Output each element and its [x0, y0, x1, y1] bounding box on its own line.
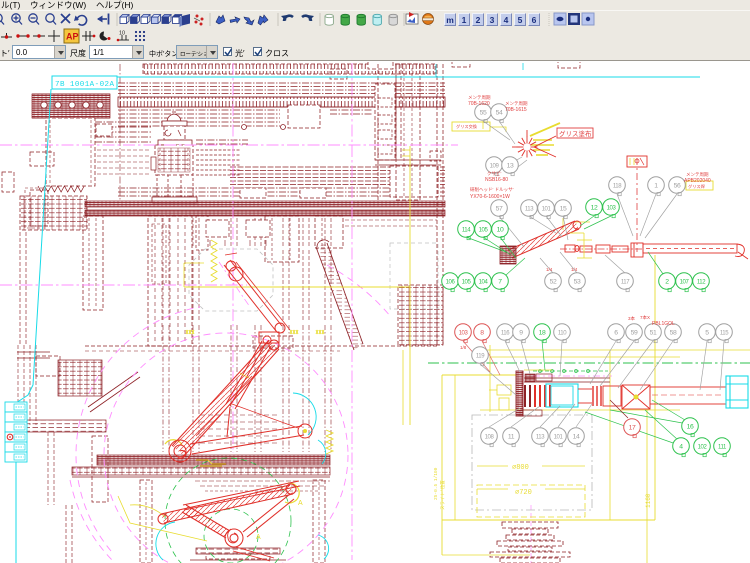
svg-text:118: 118	[613, 183, 622, 189]
svg-text:101: 101	[554, 434, 564, 440]
svg-text:スライト'位置: スライト'位置	[439, 480, 446, 510]
svg-text:111: 111	[718, 444, 727, 450]
svg-text:103: 103	[459, 330, 469, 336]
svg-text:10: 10	[497, 226, 504, 233]
svg-text:117: 117	[621, 279, 630, 285]
svg-text:55: 55	[480, 109, 487, 116]
svg-text:106: 106	[446, 279, 456, 285]
svg-text:15: 15	[560, 205, 567, 212]
svg-text:AP: AP	[66, 32, 79, 42]
svg-text:7本X: 7本X	[640, 314, 650, 321]
svg-text:102: 102	[698, 444, 708, 450]
svg-text:103: 103	[607, 205, 617, 211]
svg-text:58: 58	[670, 329, 677, 336]
svg-text:52: 52	[550, 278, 557, 285]
svg-text:112: 112	[697, 279, 706, 285]
svg-text:51: 51	[650, 329, 657, 336]
svg-text:YX70-6-1600×1W: YX70-6-1600×1W	[470, 194, 510, 200]
svg-text:113: 113	[525, 206, 534, 212]
svg-text:108: 108	[485, 434, 495, 440]
svg-text:70B-1620: 70B-1620	[468, 101, 490, 107]
svg-text:グリス塗布: グリス塗布	[559, 129, 592, 138]
svg-text:119: 119	[476, 353, 485, 359]
svg-text:12: 12	[591, 204, 598, 211]
svg-text:17: 17	[629, 424, 636, 431]
svg-text:14: 14	[573, 433, 580, 440]
svg-text:11: 11	[508, 433, 515, 440]
svg-text:13: 13	[507, 162, 514, 169]
svg-text:∅720: ∅720	[515, 489, 532, 497]
svg-text:105: 105	[479, 227, 489, 233]
svg-text:113: 113	[536, 434, 545, 440]
svg-text:105: 105	[462, 279, 472, 285]
svg-text:1160: 1160	[645, 493, 652, 508]
svg-text:グリス交換: グリス交換	[456, 123, 478, 130]
svg-text:NSB16-80: NSB16-80	[485, 177, 508, 183]
svg-text:研削ヘッド′ ドルッサ′: 研削ヘッド′ ドルッサ′	[470, 186, 514, 193]
svg-text:7B 1001A-02A: 7B 1001A-02A	[55, 81, 114, 89]
svg-text:101: 101	[542, 206, 552, 212]
svg-text:59: 59	[631, 329, 638, 336]
svg-text:54: 54	[496, 109, 503, 116]
svg-text:116: 116	[501, 330, 510, 336]
svg-text:A: A	[298, 500, 303, 507]
svg-text:1/8: 1/8	[460, 345, 467, 350]
svg-text:107: 107	[680, 279, 690, 285]
svg-text:PBL1GOL: PBL1GOL	[652, 321, 675, 327]
svg-text:10: 10	[119, 31, 125, 37]
svg-text:104: 104	[479, 279, 489, 285]
svg-text:18: 18	[539, 329, 546, 336]
svg-text:A: A	[256, 534, 261, 541]
svg-text:109: 109	[490, 163, 500, 169]
svg-text:クサビ′: クサビ′	[487, 170, 501, 177]
svg-text:110: 110	[558, 330, 567, 336]
svg-text:56: 56	[674, 182, 681, 189]
svg-text:57: 57	[496, 205, 503, 212]
svg-text:3本: 3本	[628, 315, 636, 322]
svg-text:70B-1615: 70B-1615	[505, 107, 527, 113]
svg-text:1/4: 1/4	[546, 267, 553, 272]
svg-text:25-0.5 1/100: 25-0.5 1/100	[433, 467, 439, 500]
svg-text:1/4: 1/4	[571, 267, 578, 272]
svg-text:∅800: ∅800	[512, 464, 529, 472]
svg-text:53: 53	[574, 278, 581, 285]
svg-text:114: 114	[462, 227, 471, 233]
svg-text:グリス焊: グリス焊	[688, 183, 706, 190]
svg-text:115: 115	[720, 330, 729, 336]
svg-text:16: 16	[687, 423, 694, 430]
